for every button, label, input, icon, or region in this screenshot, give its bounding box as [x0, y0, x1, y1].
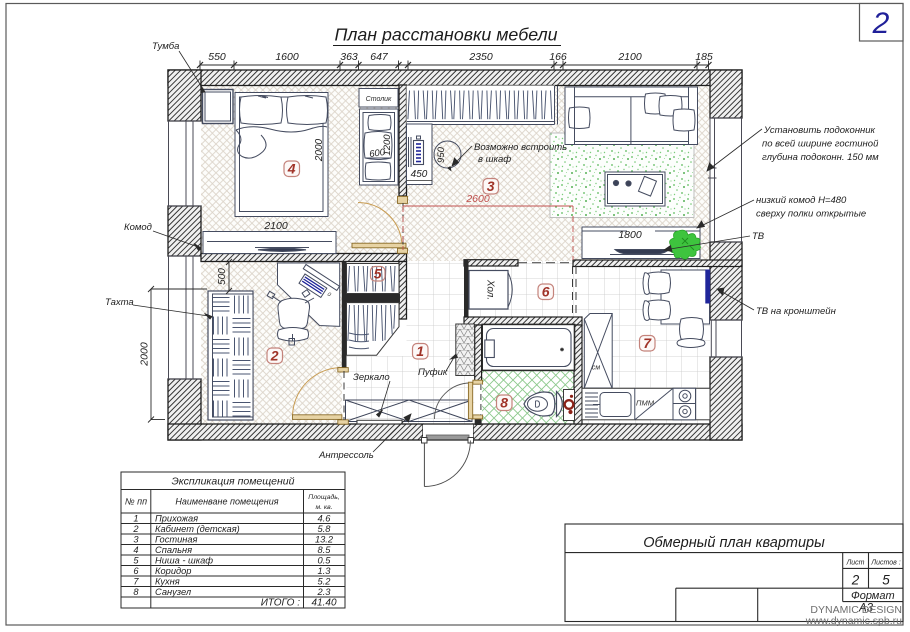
svg-text:13.2: 13.2 — [315, 535, 334, 545]
svg-text:0.5: 0.5 — [318, 556, 332, 566]
svg-text:в шкаф: в шкаф — [478, 154, 511, 165]
svg-text:5.2: 5.2 — [318, 577, 332, 587]
svg-text:4: 4 — [287, 160, 296, 176]
svg-text:2: 2 — [270, 347, 279, 363]
svg-text:Гостиная: Гостиная — [155, 535, 198, 545]
svg-text:2: 2 — [132, 524, 139, 534]
svg-text:5: 5 — [133, 556, 139, 566]
svg-text:550: 550 — [208, 51, 226, 63]
svg-text:1600: 1600 — [275, 51, 299, 63]
svg-text:сверху полки открытые: сверху полки открытые — [756, 209, 866, 220]
svg-text:5.8: 5.8 — [318, 524, 332, 534]
svg-text:2: 2 — [851, 573, 860, 588]
svg-text:Формат: Формат — [851, 590, 895, 602]
svg-text:8.5: 8.5 — [318, 545, 332, 555]
svg-text:Комод: Комод — [124, 222, 152, 233]
svg-text:1: 1 — [416, 343, 424, 359]
svg-text:ТВ: ТВ — [752, 231, 765, 242]
svg-text:166: 166 — [549, 51, 567, 63]
svg-text:363: 363 — [340, 51, 358, 63]
svg-text:6: 6 — [133, 566, 139, 576]
svg-text:по всей ширине гостиной: по всей ширине гостиной — [762, 139, 879, 150]
svg-text:Установить подоконник: Установить подоконник — [763, 125, 876, 136]
svg-text:Ниша - шкаф: Ниша - шкаф — [155, 556, 213, 566]
svg-text:Наименване помещения: Наименване помещения — [175, 497, 278, 507]
svg-text:500: 500 — [217, 268, 228, 285]
svg-text:2100: 2100 — [263, 220, 288, 232]
svg-text:ИТОГО :: ИТОГО : — [261, 597, 300, 608]
svg-text:Тумба: Тумба — [152, 41, 179, 52]
svg-text:3: 3 — [133, 535, 139, 545]
svg-text:Столик: Столик — [366, 96, 392, 103]
svg-text:647: 647 — [370, 51, 389, 63]
svg-text:5: 5 — [374, 265, 382, 281]
svg-text:Лист: Лист — [845, 560, 864, 567]
svg-text:Зеркало: Зеркало — [353, 372, 390, 383]
svg-text:низкий комод Н=480: низкий комод Н=480 — [756, 195, 847, 206]
svg-text:2350: 2350 — [468, 51, 493, 63]
svg-text:Площадь,: Площадь, — [308, 493, 340, 501]
svg-text:Экспликация помещений: Экспликация помещений — [172, 476, 295, 488]
svg-text:2: 2 — [872, 7, 890, 40]
svg-text:8: 8 — [500, 394, 508, 410]
svg-text:2600: 2600 — [465, 193, 490, 205]
svg-text:450: 450 — [411, 169, 428, 180]
svg-text:Антрессоль: Антрессоль — [318, 450, 374, 461]
svg-text:ТВ на кронштейн: ТВ на кронштейн — [756, 306, 837, 317]
svg-text:7: 7 — [133, 577, 139, 587]
svg-text:Спальня: Спальня — [155, 545, 192, 555]
svg-text:Обмерный план квартиры: Обмерный план квартиры — [643, 535, 825, 551]
svg-text:7: 7 — [643, 335, 652, 351]
svg-text:1800: 1800 — [618, 229, 642, 241]
svg-text:2000: 2000 — [314, 138, 325, 162]
svg-text:см: см — [592, 365, 601, 372]
svg-text:Кухня: Кухня — [155, 577, 180, 587]
svg-text:185: 185 — [695, 51, 713, 63]
svg-text:Хол.: Хол. — [485, 279, 496, 300]
svg-text:Кабинет (детская): Кабинет (детская) — [155, 524, 240, 534]
svg-text:2.3: 2.3 — [317, 587, 332, 597]
svg-text:4: 4 — [133, 545, 138, 555]
svg-text:Пуфик: Пуфик — [418, 367, 448, 378]
svg-text:2000: 2000 — [139, 342, 151, 367]
svg-text:глубина подоконн. 150 мм: глубина подоконн. 150 мм — [762, 152, 879, 163]
svg-text:2100: 2100 — [617, 51, 642, 63]
svg-text:3: 3 — [487, 178, 495, 194]
svg-text:Листов :: Листов : — [870, 560, 900, 567]
svg-text:41.40: 41.40 — [311, 597, 336, 608]
svg-text:Коридор: Коридор — [155, 566, 191, 576]
svg-text:1200: 1200 — [382, 134, 393, 156]
svg-text:План расстановки мебели: План расстановки мебели — [334, 25, 557, 45]
svg-text:950: 950 — [436, 146, 447, 163]
svg-text:Санузел: Санузел — [155, 587, 192, 597]
svg-text:6: 6 — [542, 283, 550, 299]
svg-text:www.dynamic.spb.ru: www.dynamic.spb.ru — [805, 615, 902, 627]
svg-text:№ пп: № пп — [125, 497, 147, 507]
svg-text:8: 8 — [133, 587, 139, 597]
svg-text:5: 5 — [882, 573, 890, 588]
svg-text:Возможно встроить: Возможно встроить — [474, 142, 567, 153]
svg-text:1: 1 — [133, 514, 138, 524]
svg-text:4.6: 4.6 — [318, 514, 332, 524]
svg-text:Прихожая: Прихожая — [155, 514, 198, 524]
svg-text:Тахта: Тахта — [105, 297, 134, 308]
svg-text:1.3: 1.3 — [318, 566, 332, 576]
svg-text:м. кв.: м. кв. — [315, 504, 332, 511]
